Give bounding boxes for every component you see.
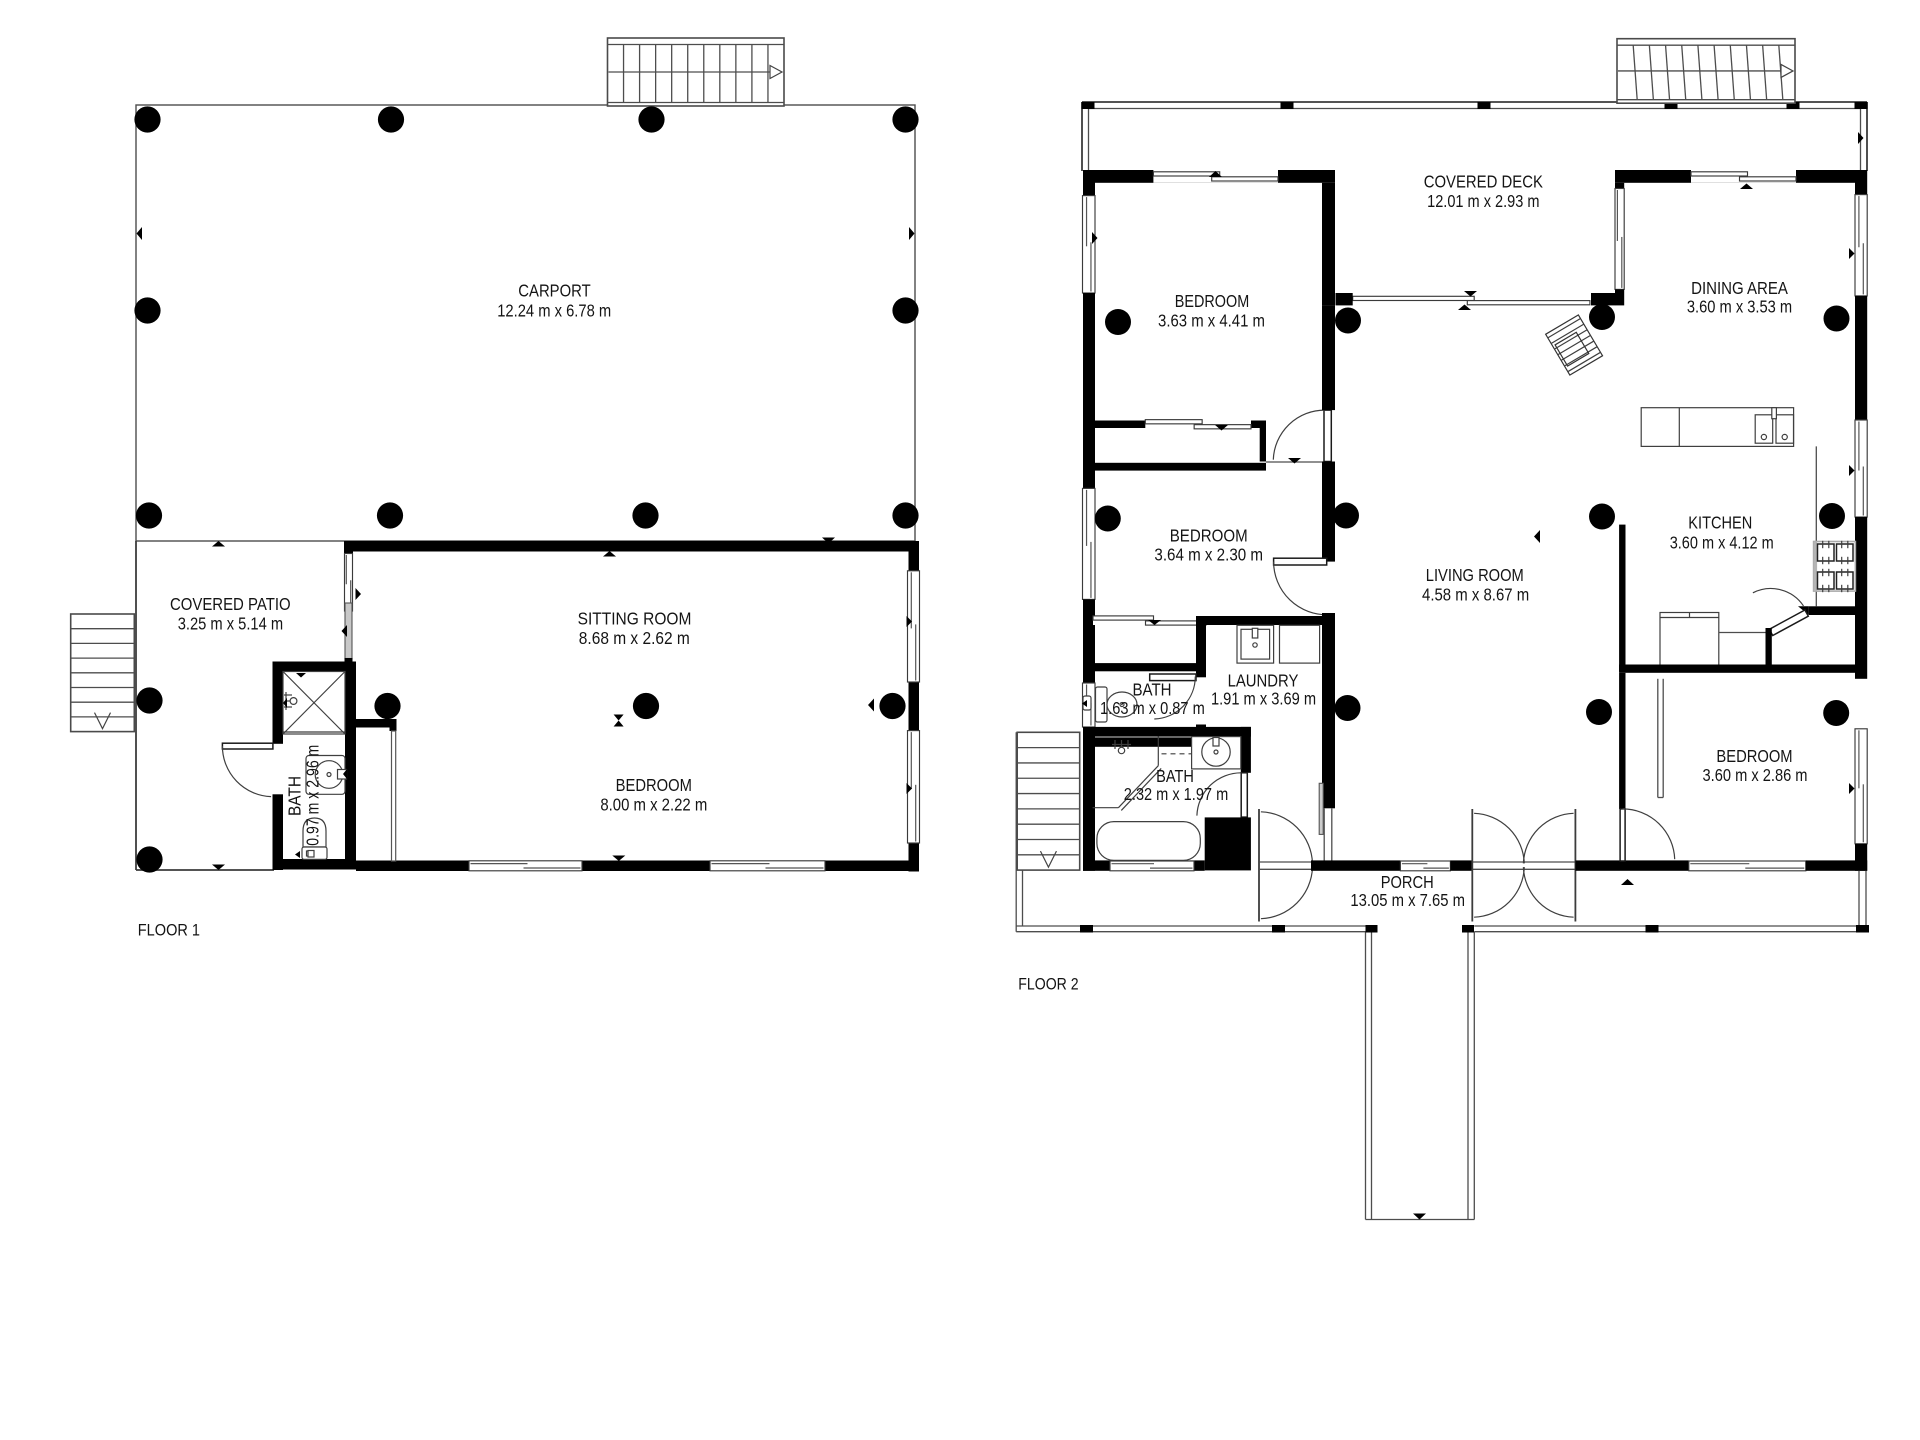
svg-text:1.91 m x 3.69 m: 1.91 m x 3.69 m (1211, 688, 1316, 708)
svg-text:LIVING ROOM: LIVING ROOM (1426, 565, 1524, 585)
svg-text:3.25 m x 5.14 m: 3.25 m x 5.14 m (178, 613, 283, 633)
svg-text:3.63 m x 4.41 m: 3.63 m x 4.41 m (1158, 311, 1265, 331)
svg-text:BEDROOM: BEDROOM (1170, 526, 1248, 546)
svg-text:0.97 m x 2.96 m: 0.97 m x 2.96 m (302, 745, 322, 846)
svg-text:8.68 m x 2.62 m: 8.68 m x 2.62 m (579, 628, 690, 648)
svg-text:12.24 m x 6.78 m: 12.24 m x 6.78 m (497, 300, 611, 320)
svg-text:8.00 m x 2.22 m: 8.00 m x 2.22 m (600, 794, 707, 814)
svg-text:CARPORT: CARPORT (518, 281, 591, 301)
svg-text:COVERED PATIO: COVERED PATIO (170, 594, 291, 614)
svg-text:BEDROOM: BEDROOM (1175, 291, 1249, 311)
svg-text:2.32 m x 1.97 m: 2.32 m x 1.97 m (1124, 784, 1228, 804)
svg-text:BATH: BATH (1133, 680, 1172, 700)
svg-text:3.60 m x 4.12 m: 3.60 m x 4.12 m (1670, 533, 1774, 553)
svg-text:BATH: BATH (1156, 766, 1194, 786)
svg-text:3.60 m x 3.53 m: 3.60 m x 3.53 m (1687, 297, 1792, 317)
svg-text:3.64 m x 2.30 m: 3.64 m x 2.30 m (1154, 544, 1263, 564)
svg-text:BEDROOM: BEDROOM (1716, 746, 1792, 766)
svg-text:SITTING ROOM: SITTING ROOM (578, 609, 692, 629)
svg-text:4.58 m x 8.67 m: 4.58 m x 8.67 m (1422, 584, 1529, 604)
svg-text:1.63 m x 0.87 m: 1.63 m x 0.87 m (1100, 698, 1205, 718)
svg-text:FLOOR 1: FLOOR 1 (138, 921, 200, 939)
svg-text:KITCHEN: KITCHEN (1688, 513, 1752, 533)
svg-text:FLOOR 2: FLOOR 2 (1018, 976, 1078, 994)
svg-text:DINING AREA: DINING AREA (1691, 278, 1788, 298)
svg-text:BEDROOM: BEDROOM (616, 775, 692, 795)
svg-text:12.01 m x 2.93 m: 12.01 m x 2.93 m (1427, 191, 1539, 211)
svg-text:13.05 m x 7.65 m: 13.05 m x 7.65 m (1350, 890, 1465, 910)
svg-text:COVERED DECK: COVERED DECK (1424, 171, 1544, 191)
svg-text:3.60 m x 2.86 m: 3.60 m x 2.86 m (1703, 765, 1808, 785)
